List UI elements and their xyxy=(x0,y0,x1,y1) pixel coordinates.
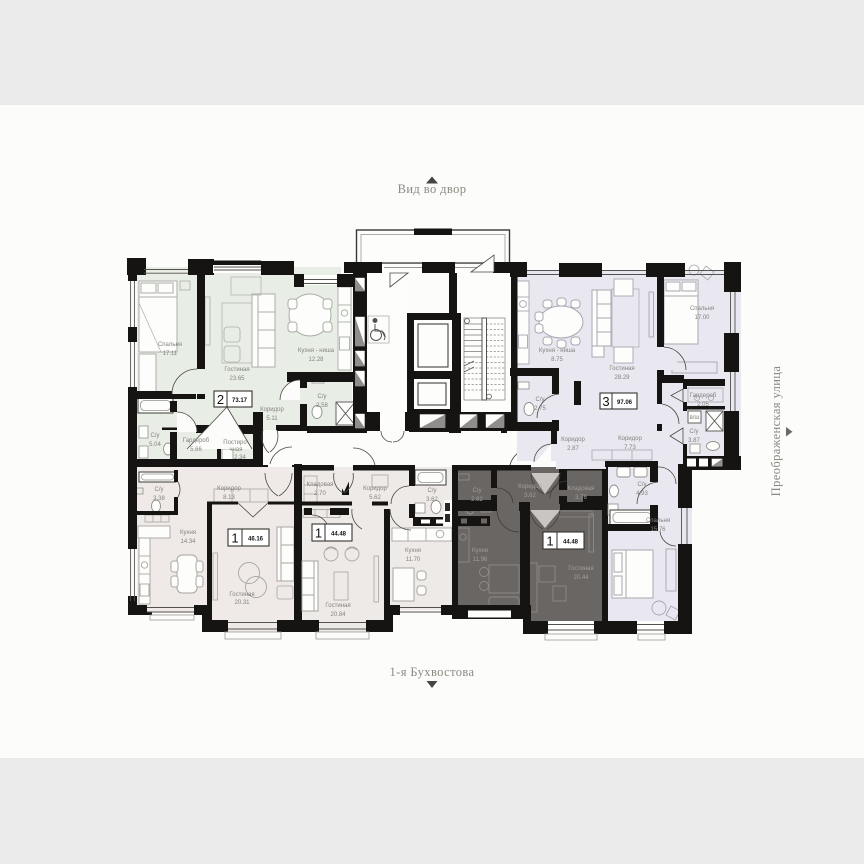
svg-text:Гардероб: Гардероб xyxy=(183,438,210,444)
svg-text:Гостиная: Гостиная xyxy=(325,603,350,609)
svg-text:Кухня: Кухня xyxy=(405,548,421,554)
svg-text:2.75: 2.75 xyxy=(534,406,546,412)
svg-text:14.34: 14.34 xyxy=(180,539,196,545)
svg-text:4.93: 4.93 xyxy=(636,491,648,497)
svg-text:Кухня - ниша: Кухня - ниша xyxy=(539,348,576,354)
svg-text:Коридор: Коридор xyxy=(518,484,542,490)
svg-text:Кладовая: Кладовая xyxy=(307,482,334,488)
svg-text:С/у: С/у xyxy=(690,429,699,435)
svg-text:1: 1 xyxy=(546,534,553,549)
svg-text:Коридор: Коридор xyxy=(618,436,642,442)
svg-text:46.16: 46.16 xyxy=(248,537,264,543)
svg-text:15.76: 15.76 xyxy=(650,527,666,533)
svg-text:С/у: С/у xyxy=(473,488,482,494)
svg-text:2.05: 2.05 xyxy=(697,402,709,408)
svg-text:Коридор: Коридор xyxy=(217,486,241,492)
svg-text:Кухня - ниша: Кухня - ниша xyxy=(298,348,335,354)
svg-text:20.31: 20.31 xyxy=(234,600,250,606)
svg-text:Спальня: Спальня xyxy=(158,342,182,348)
svg-text:12.28: 12.28 xyxy=(308,357,324,363)
svg-text:2.34: 2.34 xyxy=(234,455,246,461)
svg-text:5.04: 5.04 xyxy=(149,442,161,448)
svg-text:чная: чная xyxy=(229,447,242,453)
svg-text:Кухня: Кухня xyxy=(180,530,196,536)
svg-text:5.11: 5.11 xyxy=(266,416,278,422)
svg-text:Гостиная: Гостиная xyxy=(229,592,254,598)
svg-text:С/у: С/у xyxy=(638,482,647,488)
svg-text:1: 1 xyxy=(231,531,238,546)
svg-text:Коридор: Коридор xyxy=(260,407,284,413)
svg-text:1: 1 xyxy=(315,526,322,541)
svg-text:Преображенская улица: Преображенская улица xyxy=(769,366,783,497)
svg-text:44.48: 44.48 xyxy=(563,540,579,546)
svg-text:Спальня: Спальня xyxy=(690,306,714,312)
svg-text:Спальня: Спальня xyxy=(646,518,670,524)
svg-text:Гостиная: Гостиная xyxy=(609,366,634,372)
svg-text:3.38: 3.38 xyxy=(153,496,165,502)
svg-text:2: 2 xyxy=(217,392,224,407)
svg-text:44.48: 44.48 xyxy=(331,532,347,538)
svg-text:3.62: 3.62 xyxy=(524,493,536,499)
svg-text:20.84: 20.84 xyxy=(330,612,346,618)
svg-text:17.00: 17.00 xyxy=(694,315,710,321)
svg-text:Коридор: Коридор xyxy=(363,486,387,492)
svg-text:Вид во двор: Вид во двор xyxy=(398,182,467,196)
svg-text:3.62: 3.62 xyxy=(426,497,438,503)
svg-text:3.87: 3.87 xyxy=(688,438,700,444)
svg-text:Кладовая: Кладовая xyxy=(568,486,595,492)
svg-text:11.70: 11.70 xyxy=(406,557,421,563)
svg-text:11.96: 11.96 xyxy=(473,557,488,563)
svg-text:73.17: 73.17 xyxy=(232,398,248,404)
svg-text:2.87: 2.87 xyxy=(567,446,579,452)
svg-text:в/ш: в/ш xyxy=(690,415,700,421)
svg-text:2.58: 2.58 xyxy=(316,403,328,409)
svg-text:С/у: С/у xyxy=(428,488,437,494)
svg-text:17.11: 17.11 xyxy=(163,351,178,357)
svg-text:Гардероб: Гардероб xyxy=(690,393,717,399)
svg-text:5.62: 5.62 xyxy=(369,495,381,501)
svg-text:С/у: С/у xyxy=(318,394,327,400)
svg-text:5.66: 5.66 xyxy=(190,447,202,453)
svg-text:Постиро-: Постиро- xyxy=(223,440,248,446)
svg-text:Гостиная: Гостиная xyxy=(224,367,249,373)
svg-text:3: 3 xyxy=(602,394,609,409)
svg-text:97.06: 97.06 xyxy=(617,400,633,406)
svg-text:С/у: С/у xyxy=(155,487,164,493)
svg-text:23.65: 23.65 xyxy=(229,376,245,382)
svg-text:3.76: 3.76 xyxy=(575,495,587,501)
svg-text:8.75: 8.75 xyxy=(551,357,563,363)
svg-text:1-я Бухвостова: 1-я Бухвостова xyxy=(389,665,474,679)
svg-text:2.62: 2.62 xyxy=(471,497,483,503)
svg-text:20.44: 20.44 xyxy=(573,575,589,581)
svg-text:2.70: 2.70 xyxy=(314,491,326,497)
svg-text:7.73: 7.73 xyxy=(624,445,636,451)
svg-text:8.13: 8.13 xyxy=(223,495,235,501)
svg-text:Кухня: Кухня xyxy=(472,548,488,554)
svg-text:Гостиная: Гостиная xyxy=(568,566,593,572)
svg-text:С/у: С/у xyxy=(536,397,545,403)
svg-text:С/у: С/у xyxy=(151,433,160,439)
svg-text:Коридор: Коридор xyxy=(561,437,585,443)
svg-text:28.29: 28.29 xyxy=(614,375,630,381)
